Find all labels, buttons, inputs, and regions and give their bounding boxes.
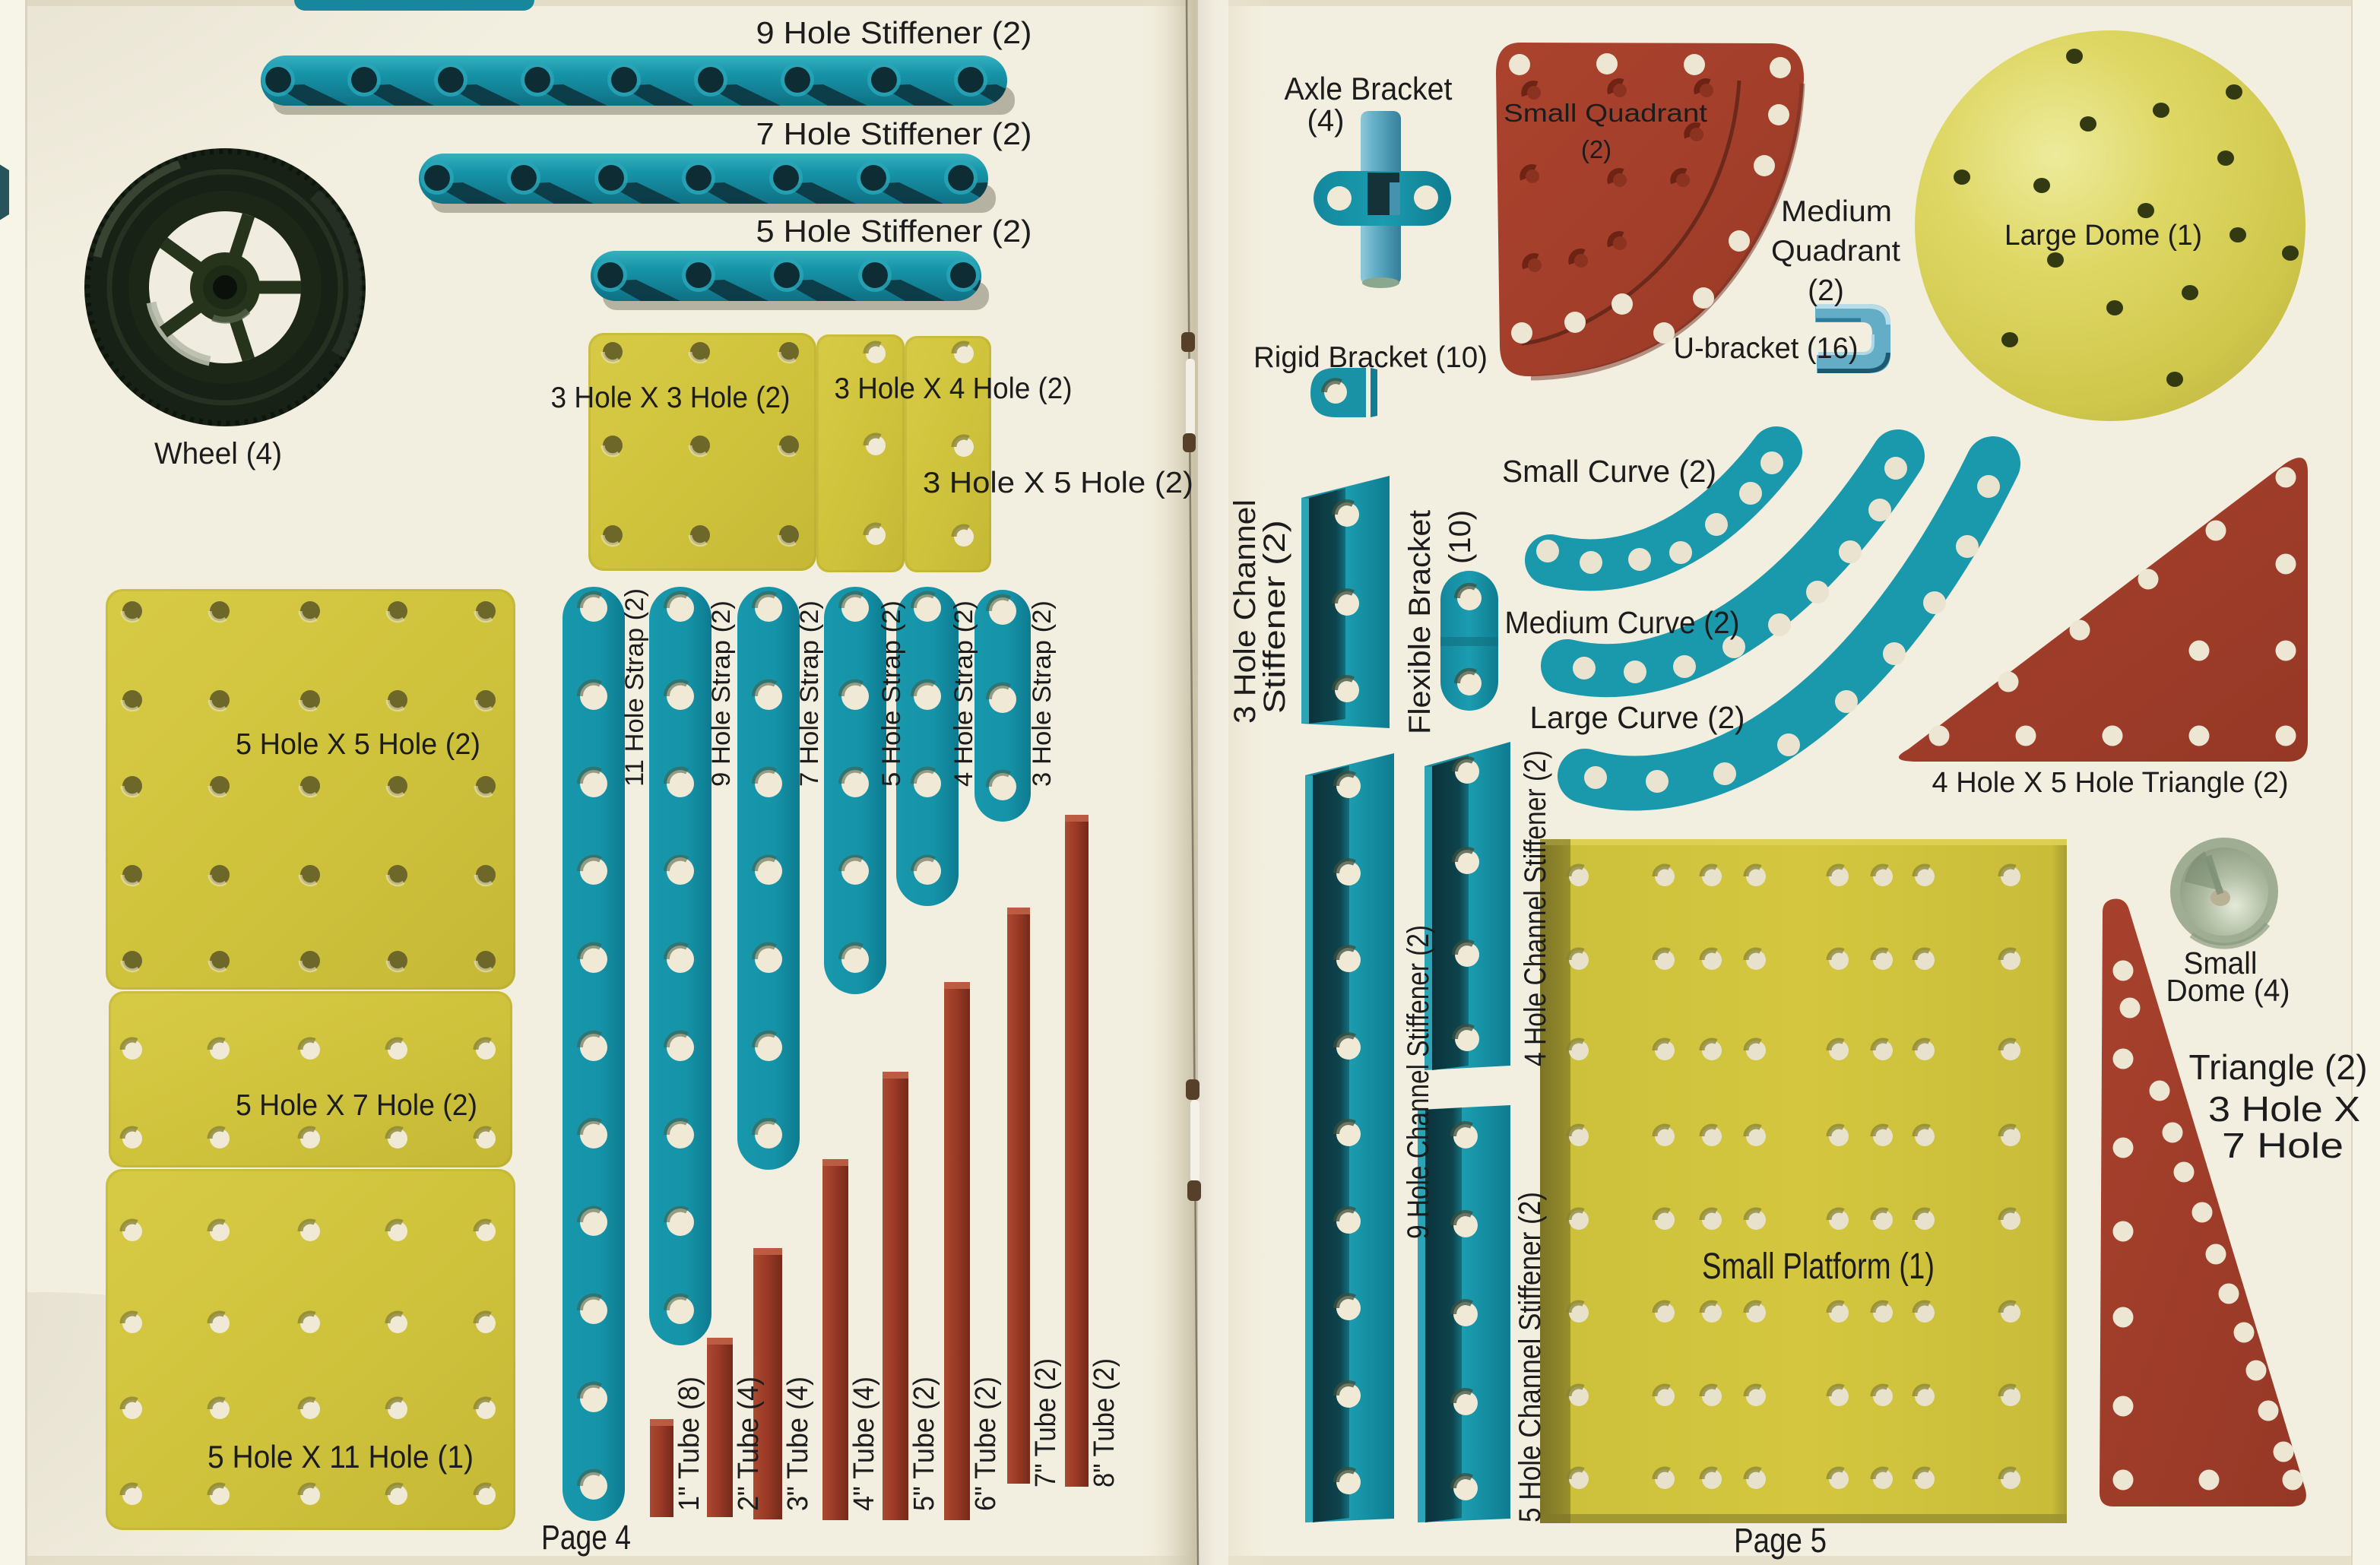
svg-text:4 Hole X 5 Hole Triangle (2): 4 Hole X 5 Hole Triangle (2) — [1932, 767, 2289, 799]
svg-text:Stiffener (2): Stiffener (2) — [1258, 520, 1291, 714]
svg-text:7 Hole Strap (2): 7 Hole Strap (2) — [795, 600, 824, 787]
svg-text:5 Hole Channel Stiffener (2): 5 Hole Channel Stiffener (2) — [1513, 1192, 1547, 1522]
svg-text:9 Hole Stiffener (2): 9 Hole Stiffener (2) — [756, 15, 1032, 50]
svg-text:11 Hole Strap (2): 11 Hole Strap (2) — [620, 588, 649, 787]
svg-text:Quadrant: Quadrant — [1771, 235, 1900, 268]
svg-text:U-bracket (16): U-bracket (16) — [1674, 332, 1859, 365]
svg-text:Large Dome (1): Large Dome (1) — [2004, 220, 2202, 252]
svg-text:5" Tube (2): 5" Tube (2) — [908, 1377, 940, 1511]
svg-text:Medium: Medium — [1781, 195, 1892, 228]
svg-text:4" Tube (4): 4" Tube (4) — [848, 1377, 880, 1511]
svg-text:5 Hole Stiffener (2): 5 Hole Stiffener (2) — [756, 214, 1032, 249]
svg-text:5 Hole X 5 Hole (2): 5 Hole X 5 Hole (2) — [236, 728, 480, 761]
svg-text:4 Hole Channel Stiffener (2): 4 Hole Channel Stiffener (2) — [1519, 750, 1552, 1066]
svg-text:(2): (2) — [1581, 135, 1611, 163]
svg-text:3 Hole X 4 Hole (2): 3 Hole X 4 Hole (2) — [835, 372, 1073, 405]
svg-text:9 Hole Channel Stiffener (2): 9 Hole Channel Stiffener (2) — [1402, 925, 1435, 1239]
svg-text:3" Tube (4): 3" Tube (4) — [782, 1377, 814, 1511]
svg-text:7" Tube (2): 7" Tube (2) — [1030, 1358, 1062, 1487]
svg-text:4 Hole Strap (2): 4 Hole Strap (2) — [949, 600, 978, 787]
svg-text:6" Tube (2): 6" Tube (2) — [970, 1377, 1002, 1511]
svg-text:Axle Bracket: Axle Bracket — [1285, 71, 1453, 106]
svg-text:7 Hole Stiffener (2): 7 Hole Stiffener (2) — [756, 116, 1032, 151]
svg-text:Large Curve (2): Large Curve (2) — [1530, 700, 1745, 735]
svg-text:5 Hole X 11 Hole (1): 5 Hole X 11 Hole (1) — [208, 1439, 474, 1475]
svg-text:Rigid Bracket (10): Rigid Bracket (10) — [1253, 341, 1488, 374]
svg-text:(4): (4) — [1307, 104, 1345, 138]
svg-text:Page 4: Page 4 — [541, 1518, 631, 1557]
svg-text:Medium Curve (2): Medium Curve (2) — [1505, 605, 1740, 640]
svg-text:(10): (10) — [1444, 510, 1477, 564]
svg-text:3 Hole Channel: 3 Hole Channel — [1228, 499, 1262, 724]
svg-text:3 Hole Strap (2): 3 Hole Strap (2) — [1028, 600, 1057, 787]
svg-text:5 Hole X 7 Hole (2): 5 Hole X 7 Hole (2) — [236, 1089, 477, 1122]
svg-text:(2): (2) — [1808, 274, 1844, 307]
svg-text:Small Curve (2): Small Curve (2) — [1502, 454, 1716, 489]
svg-text:1" Tube (8): 1" Tube (8) — [673, 1377, 705, 1511]
svg-text:Wheel (4): Wheel (4) — [154, 437, 282, 470]
svg-text:Small Quadrant: Small Quadrant — [1504, 99, 1707, 127]
svg-text:Flexible Bracket: Flexible Bracket — [1403, 510, 1437, 734]
svg-text:7 Hole: 7 Hole — [2222, 1126, 2344, 1165]
svg-text:2" Tube (4): 2" Tube (4) — [733, 1377, 765, 1511]
svg-text:Triangle (2): Triangle (2) — [2189, 1047, 2368, 1087]
svg-text:Small Platform (1): Small Platform (1) — [1702, 1247, 1935, 1287]
svg-text:9 Hole Strap (2): 9 Hole Strap (2) — [707, 600, 736, 787]
svg-text:5 Hole Strap (2): 5 Hole Strap (2) — [877, 600, 906, 787]
svg-text:Dome (4): Dome (4) — [2166, 973, 2290, 1008]
svg-text:3 Hole X 5 Hole (2): 3 Hole X 5 Hole (2) — [923, 467, 1193, 499]
svg-text:3 Hole X 3 Hole (2): 3 Hole X 3 Hole (2) — [551, 382, 791, 414]
svg-text:3 Hole X: 3 Hole X — [2208, 1089, 2360, 1129]
svg-text:Page 5: Page 5 — [1734, 1521, 1827, 1560]
svg-text:8" Tube (2): 8" Tube (2) — [1089, 1358, 1120, 1487]
